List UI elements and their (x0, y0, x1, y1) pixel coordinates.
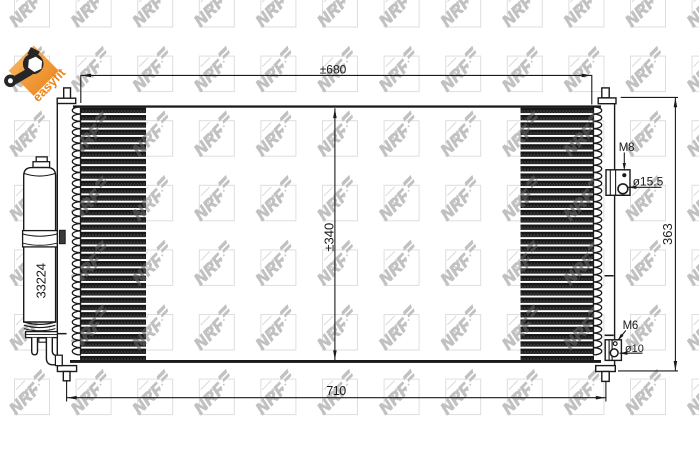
svg-text:±680: ±680 (320, 62, 347, 76)
svg-text:710: 710 (326, 384, 346, 398)
svg-text:M8: M8 (619, 142, 634, 154)
svg-text:ø15.5: ø15.5 (633, 174, 664, 188)
svg-text:M6: M6 (623, 320, 638, 332)
svg-text:±340: ±340 (322, 223, 337, 252)
svg-text:33224: 33224 (34, 263, 49, 298)
svg-text:363: 363 (660, 223, 675, 245)
